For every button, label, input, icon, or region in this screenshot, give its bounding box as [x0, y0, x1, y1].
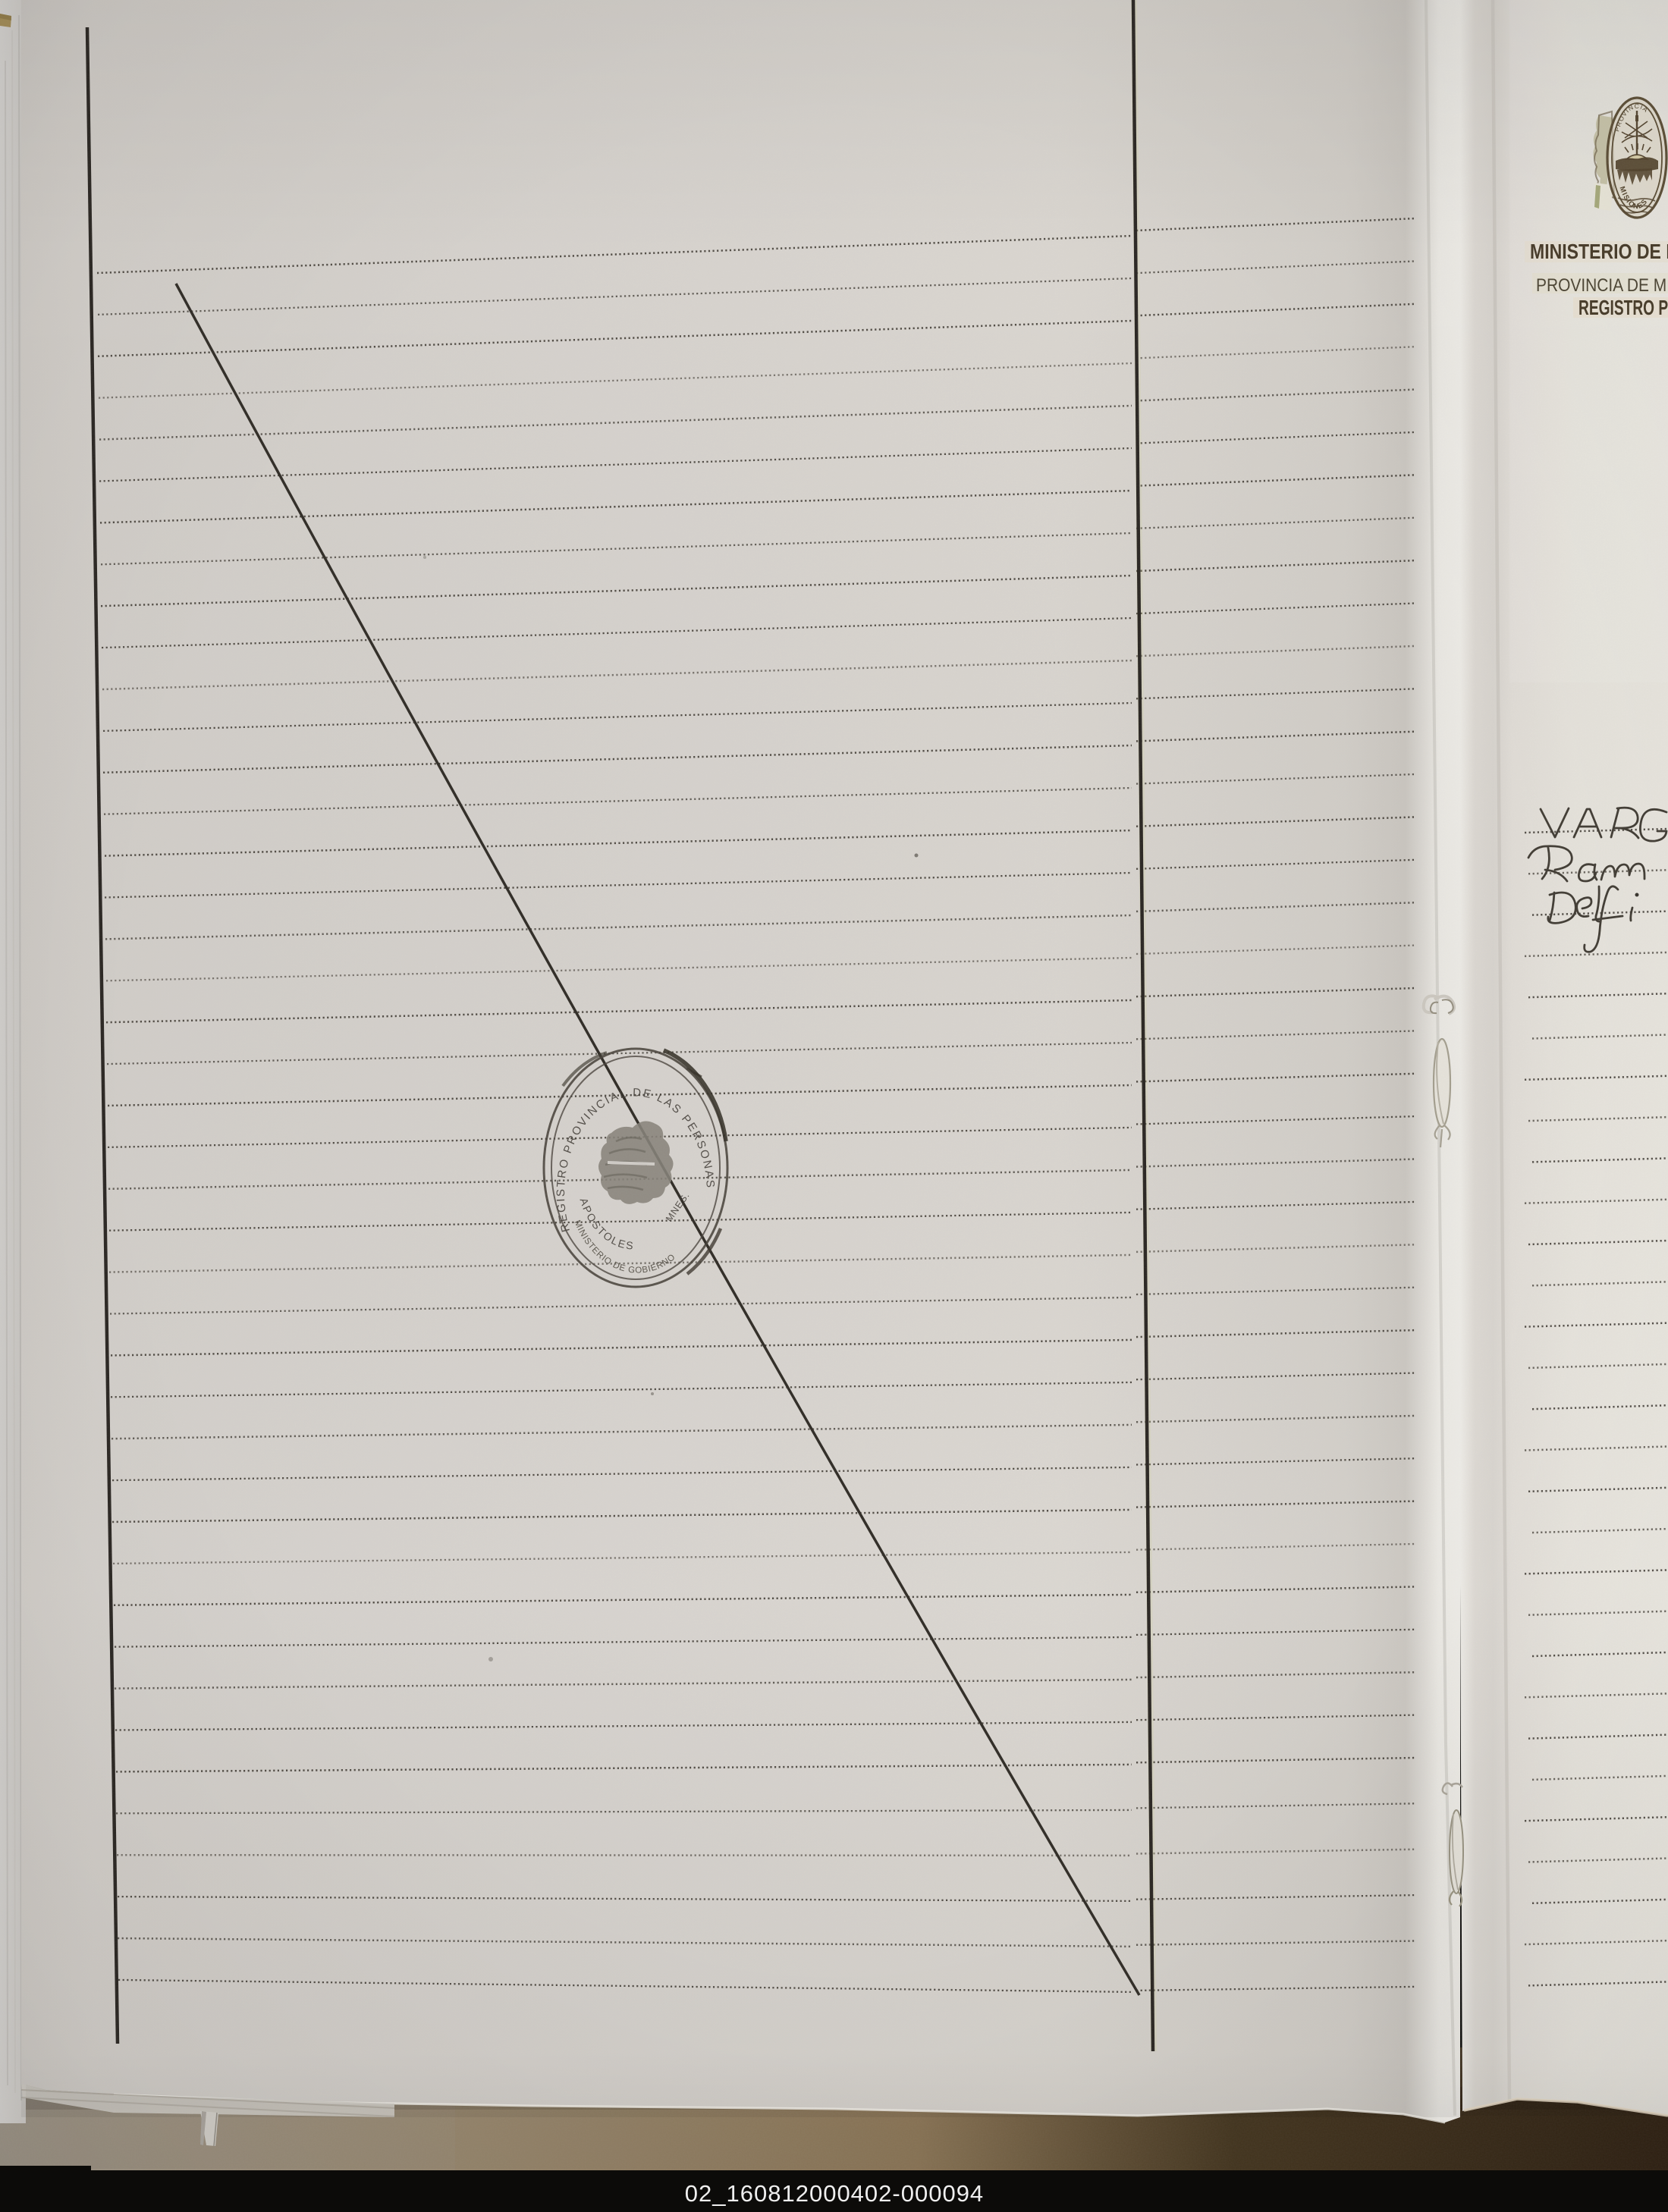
svg-text:02_160812000402-000094: 02_160812000402-000094 [685, 2180, 984, 2207]
